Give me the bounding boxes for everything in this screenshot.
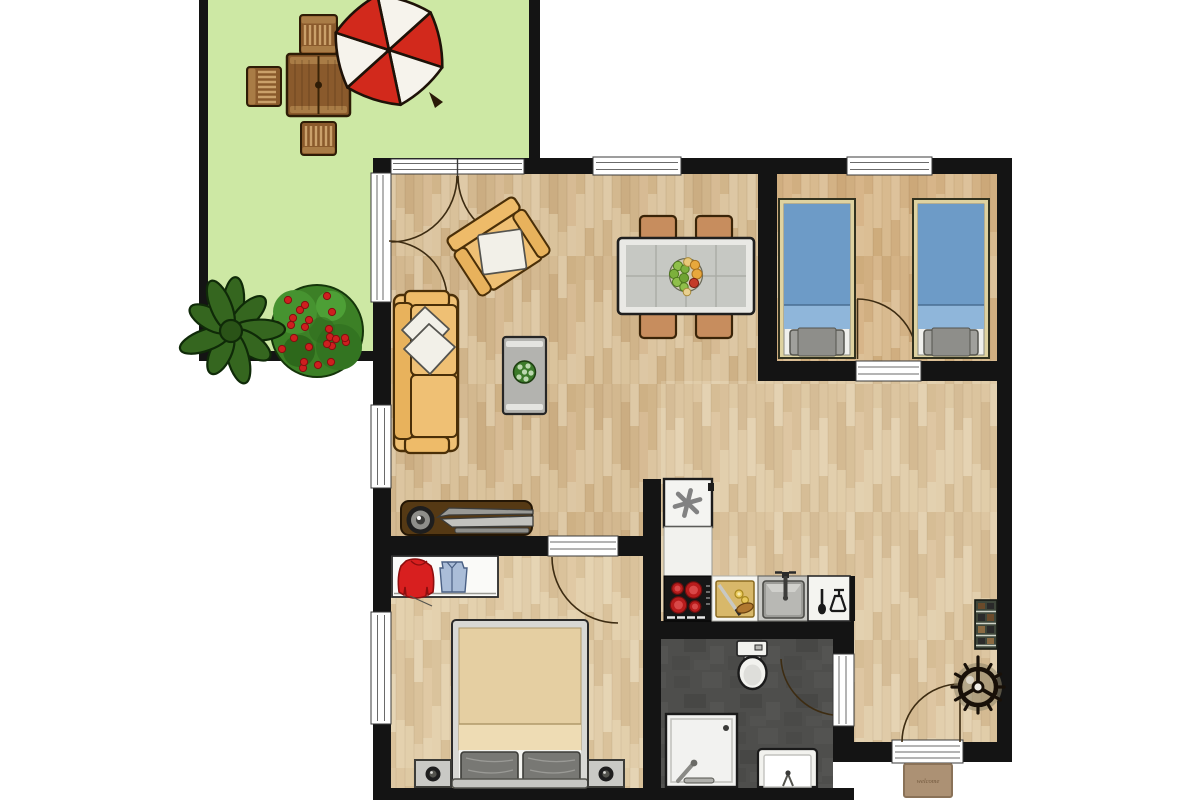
svg-text:welcome: welcome bbox=[917, 778, 940, 785]
